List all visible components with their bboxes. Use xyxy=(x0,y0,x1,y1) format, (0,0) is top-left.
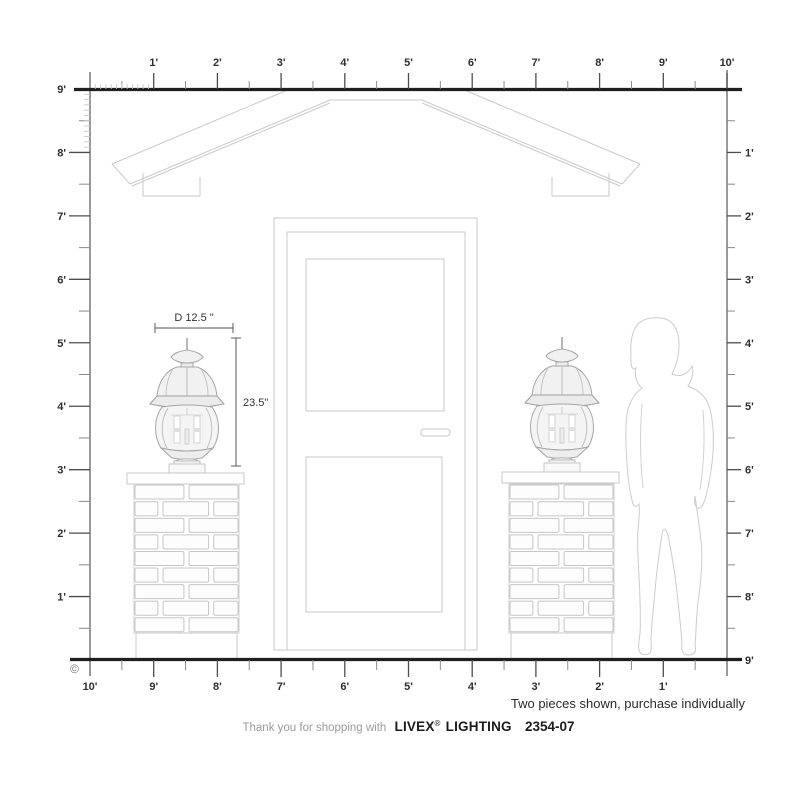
brick-pillar-right xyxy=(502,472,619,659)
brick xyxy=(564,518,613,532)
brick xyxy=(135,518,184,532)
ruler-label: 5' xyxy=(404,57,413,69)
diameter-dimension-label: D 12.5 " xyxy=(174,312,213,324)
ruler-label: 1' xyxy=(659,681,668,693)
thank-you-text: Thank you for shopping with xyxy=(242,722,386,734)
ruler-label: 4' xyxy=(468,681,477,693)
ruler-label: 3' xyxy=(277,57,286,69)
pillar-cap xyxy=(127,473,244,484)
pillar-base xyxy=(136,633,237,659)
copyright-symbol: © xyxy=(70,662,79,676)
brick xyxy=(189,618,238,632)
brick xyxy=(189,585,238,599)
brick xyxy=(135,601,158,615)
brick xyxy=(135,535,158,549)
ruler-label: 9' xyxy=(659,57,668,69)
ruler-label: 4' xyxy=(340,57,349,69)
ruler-label: 2' xyxy=(57,528,66,540)
ruler-label: 3' xyxy=(57,465,66,477)
ruler-label: 7' xyxy=(532,57,541,69)
ruler-label: 8' xyxy=(595,57,604,69)
ruler-label: 5' xyxy=(57,338,66,350)
brick xyxy=(135,585,184,599)
purchase-note: Two pieces shown, purchase individually xyxy=(511,696,745,711)
roof-gable xyxy=(112,89,640,196)
brick xyxy=(538,601,584,615)
front-door xyxy=(274,218,477,650)
ruler-label: 4' xyxy=(57,401,66,413)
brick xyxy=(510,601,533,615)
ruler-label: 7' xyxy=(277,681,286,693)
ruler-label: 4' xyxy=(745,338,754,350)
post-lantern-left xyxy=(150,338,224,473)
brick xyxy=(214,535,238,549)
ruler-label: 6' xyxy=(340,681,349,693)
brick xyxy=(135,485,184,499)
ruler-label: 6' xyxy=(468,57,477,69)
ruler-label: 2' xyxy=(595,681,604,693)
ruler-label: 8' xyxy=(213,681,222,693)
ruler-label: 5' xyxy=(404,681,413,693)
model-number: 2354-07 xyxy=(525,719,575,734)
ruler-label: 3' xyxy=(532,681,541,693)
roof-eave-block-left xyxy=(143,173,200,196)
roof-eave-block-right xyxy=(552,173,609,196)
ruler-label: 10' xyxy=(83,681,98,693)
ruler-label: 8' xyxy=(745,592,754,604)
brick xyxy=(564,585,613,599)
footer-brand-line: Thank you for shopping with LIVEX® LIGHT… xyxy=(90,719,727,734)
brick xyxy=(163,535,209,549)
scale-diagram: D 12.5 " 23.5" 1'2'3'4'5'6'7'8'9'10'9'8'… xyxy=(0,0,800,800)
brick xyxy=(589,535,613,549)
brick xyxy=(135,618,184,632)
brick xyxy=(510,568,533,582)
brick xyxy=(538,568,584,582)
diagram-canvas: D 12.5 " 23.5" 1'2'3'4'5'6'7'8'9'10'9'8'… xyxy=(0,0,800,800)
brick xyxy=(589,568,613,582)
ruler-label: 6' xyxy=(57,274,66,286)
brick xyxy=(510,535,533,549)
ruler-label: 2' xyxy=(213,57,222,69)
brick xyxy=(510,585,559,599)
brand-name: LIVEX xyxy=(395,719,435,734)
brand-suffix: LIGHTING xyxy=(446,719,512,734)
registered-trademark: ® xyxy=(435,719,441,728)
brick xyxy=(135,568,158,582)
brick xyxy=(564,485,613,499)
brick xyxy=(214,568,238,582)
brick xyxy=(163,568,209,582)
brick xyxy=(538,535,584,549)
brick xyxy=(589,502,613,516)
woman-silhouette xyxy=(626,318,714,655)
ruler-label: 5' xyxy=(745,401,754,413)
ruler-label: 1' xyxy=(57,592,66,604)
brick xyxy=(564,551,613,565)
ruler-label: 9' xyxy=(57,84,66,96)
ruler-label: 2' xyxy=(745,211,754,223)
brick xyxy=(214,502,238,516)
brick xyxy=(163,502,209,516)
brick-pillar-left xyxy=(127,473,244,659)
brick xyxy=(189,518,238,532)
ruler-label: 9' xyxy=(149,681,158,693)
ruler-label: 7' xyxy=(745,528,754,540)
brick xyxy=(163,601,209,615)
pillar-cap xyxy=(502,472,619,483)
ruler-label: 3' xyxy=(745,274,754,286)
brick xyxy=(538,502,584,516)
brick xyxy=(564,618,613,632)
ruler-label: 1' xyxy=(149,57,158,69)
brick xyxy=(510,618,559,632)
brick xyxy=(135,502,158,516)
pillar-base xyxy=(511,633,612,659)
brick xyxy=(135,551,184,565)
ruler-label: 9' xyxy=(745,655,754,667)
ruler-label: 10' xyxy=(720,57,735,69)
height-dimension-label: 23.5" xyxy=(243,397,268,409)
ruler-label: 1' xyxy=(745,147,754,159)
post-lantern-right xyxy=(525,337,599,472)
ruler-label: 6' xyxy=(745,465,754,477)
brick xyxy=(510,485,559,499)
brick xyxy=(214,601,238,615)
brick xyxy=(589,601,613,615)
ruler-label: 7' xyxy=(57,211,66,223)
ruler-label: 8' xyxy=(57,147,66,159)
brick xyxy=(189,485,238,499)
brick xyxy=(510,502,533,516)
brick xyxy=(510,551,559,565)
brick xyxy=(189,551,238,565)
brick xyxy=(510,518,559,532)
